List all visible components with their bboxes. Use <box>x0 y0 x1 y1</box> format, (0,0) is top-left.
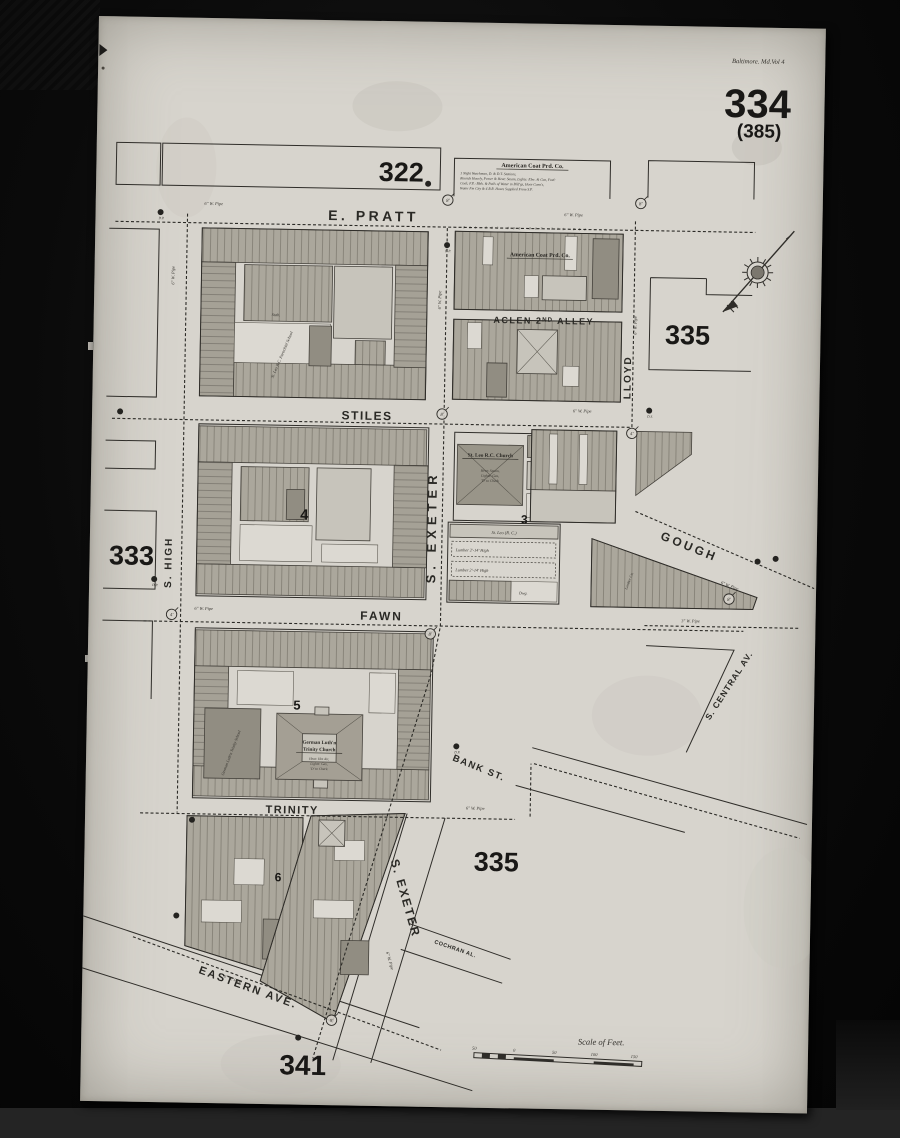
hydrant-dot <box>151 576 157 582</box>
hydrant-dot <box>173 912 179 918</box>
scale-tick: 150 <box>631 1054 639 1059</box>
water-pipe-label: 6" W. Pipe <box>194 606 213 611</box>
street-label-e-pratt: E. PRATT <box>328 207 419 225</box>
street-label-trinity: TRINITY <box>265 804 318 817</box>
valve-tick <box>644 197 647 200</box>
hydrant-label: D.P. <box>158 216 165 220</box>
bank-street-lines <box>515 747 808 834</box>
hydrant-dot <box>117 408 123 414</box>
scale-tick: 50 <box>552 1050 558 1055</box>
hydrant-dot <box>425 181 431 187</box>
street-label-s-exeter-lower: S. EXETER <box>388 858 424 939</box>
hydrant-label: D.S. <box>646 415 653 419</box>
sheet-number: 334 <box>724 82 792 127</box>
water-pipe-label: 6" W. Pipe <box>466 806 485 811</box>
scale-title: Scale of Feet. <box>578 1037 625 1048</box>
hydrant-dot <box>158 209 164 215</box>
valve-tick <box>434 627 437 630</box>
scan-streaks <box>0 0 100 90</box>
lumber-label: Lumber 2'-14' High <box>455 547 489 553</box>
water-pipe-label: 6" W. Pipe <box>564 212 583 217</box>
block-american-coat: 801 803 805 807 809 811 American Coat Pr… <box>454 225 623 312</box>
st-leo-note: 'D' to Check <box>481 479 499 483</box>
block-number-6: 6 <box>275 870 282 884</box>
water-pipe-label: 6" W. Pipe <box>170 266 175 285</box>
american-coat-note: Water Fm City & 4 R.R. Hoses Supplied Fr… <box>460 186 533 191</box>
water-pipe-label: 6" W. Pipe <box>573 408 592 413</box>
block-four: 4 <box>196 424 429 600</box>
sheet-header: Baltimore. Md.Vol 4 334 (385) <box>724 58 793 143</box>
stable-label: Stab. <box>272 312 281 317</box>
block-number-5: 5 <box>293 697 300 712</box>
hydrant-dot <box>646 408 652 414</box>
water-pipe-label: 6" W. Pipe <box>204 201 223 206</box>
valve-tick <box>175 607 178 610</box>
block-six: 6 <box>183 810 405 1024</box>
block-number-3: 3 <box>521 512 528 526</box>
block-lumber-yard: St. Leo (R. C.) Lumber 2'-14' High Lumbe… <box>447 522 560 604</box>
sanborn-map: Baltimore. Md.Vol 4 334 (385) 322 335 33… <box>80 16 826 1114</box>
edge-notch <box>99 44 107 56</box>
block-aclen-stiles <box>452 319 621 402</box>
hydrant-dot <box>444 242 450 248</box>
map-sheet: Baltimore. Md.Vol 4 334 (385) 322 335 33… <box>80 16 826 1114</box>
adjacent-sheet-top: 322 <box>379 157 425 188</box>
st-leo-hall-label: St. Leo (R. C.) <box>491 530 517 535</box>
dwg-label: Dwg. <box>518 590 528 595</box>
scale-tick: 100 <box>591 1052 599 1057</box>
american-coat-notes: American Coat Prd. Co. 1 Night Watchman,… <box>459 162 568 192</box>
adjacent-sheet-right: 335 <box>665 320 711 351</box>
block-three: 3 <box>521 429 692 529</box>
valve-tick <box>446 407 449 410</box>
block-number-4: 4 <box>300 507 309 524</box>
adjacent-sheet-center: 335 <box>474 847 520 878</box>
water-pipe-label: 6" W. Pipe <box>437 291 442 310</box>
street-label-stiles: STILES <box>341 408 392 423</box>
scan-corner-glow <box>836 1020 900 1110</box>
scale-tick: 0 <box>513 1048 516 1053</box>
lloyd-gough-wedge <box>636 431 692 496</box>
water-pipe-label: 6" W. Pipe <box>385 951 395 970</box>
scale-bar: Scale of Feet. 50 0 50 100 150 <box>471 1035 642 1067</box>
adjacent-sheet-bottom: 341 <box>279 1049 326 1081</box>
valve-tick <box>635 426 638 429</box>
compass-rose-icon <box>723 230 794 313</box>
block-five: 5 German Luth'n Trinity Church Heat: Hot… <box>192 628 433 802</box>
street-label-s-high: S. HIGH <box>163 537 175 588</box>
hydrant-dot <box>453 743 459 749</box>
street-label-bank: BANK ST. <box>451 753 507 784</box>
volume-line: Baltimore. Md.Vol 4 <box>732 58 785 66</box>
hydrant-label: D.P. <box>444 249 451 253</box>
hydrant-label: D.P. <box>151 583 158 587</box>
street-label-cochran: COCHRAN AL. <box>433 939 476 959</box>
water-pipe-label: 3" W. Pipe <box>681 618 700 623</box>
sheet-alt-number: (385) <box>737 121 782 143</box>
scanned-page: Baltimore. Md.Vol 4 334 (385) 322 335 33… <box>0 0 900 1138</box>
hydrant-dot <box>773 556 779 562</box>
street-label-s-exeter-upper: S. EXETER <box>423 470 440 583</box>
scale-tick: 50 <box>472 1046 478 1051</box>
block-pratt-stiles: Stab. St. Leo R.C. Parochial School <box>199 228 428 400</box>
street-label-lloyd: LLOYD <box>622 355 634 399</box>
street-label-aclen-alley: ACLEN 2ᴺᴰ ALLEY <box>493 315 594 327</box>
street-label-fawn: FAWN <box>360 609 403 624</box>
trinity-church-note: 'D' to Check <box>310 767 328 771</box>
lot-outlines <box>80 142 818 1096</box>
trinity-church-label: Trinity Church <box>303 748 336 754</box>
trinity-church-label: German Luth'n <box>302 741 336 747</box>
lumber-label: Lumber 2'-14' High <box>454 567 488 573</box>
adjacent-sheet-left: 333 <box>109 540 155 571</box>
hydrant-label: D.P. <box>453 750 460 754</box>
water-pipe-label: 6" W. Pipe <box>633 316 638 335</box>
